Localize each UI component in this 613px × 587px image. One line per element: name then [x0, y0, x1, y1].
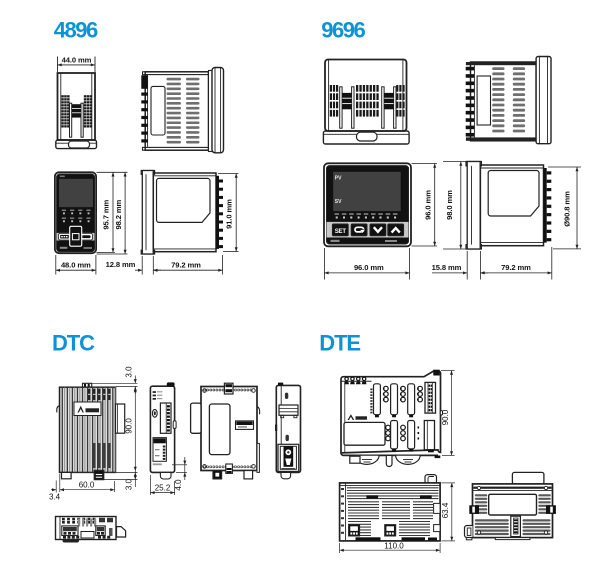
- svg-text:SET: SET: [335, 229, 347, 235]
- svg-text:48.0 mm: 48.0 mm: [61, 260, 91, 269]
- svg-text:90.0: 90.0: [125, 418, 134, 434]
- svg-text:25.2: 25.2: [155, 483, 171, 492]
- svg-text:DTE: DTE: [319, 331, 360, 356]
- svg-text:4896: 4896: [54, 17, 98, 42]
- svg-text:44.0 mm: 44.0 mm: [62, 56, 92, 65]
- svg-text:96.0 mm: 96.0 mm: [354, 263, 384, 272]
- svg-text:96.0 mm: 96.0 mm: [423, 190, 432, 220]
- svg-text:3.0: 3.0: [125, 366, 134, 378]
- svg-text:Ø90.8 mm: Ø90.8 mm: [562, 191, 571, 227]
- svg-text:3.0: 3.0: [125, 478, 134, 490]
- svg-text:3.4: 3.4: [49, 493, 61, 502]
- svg-text:60.0: 60.0: [79, 481, 95, 490]
- svg-text:90.0: 90.0: [441, 409, 450, 425]
- svg-text:91.0 mm: 91.0 mm: [225, 199, 234, 229]
- svg-text:95.7 mm: 95.7 mm: [101, 200, 110, 230]
- svg-text:98.2 mm: 98.2 mm: [114, 200, 123, 230]
- svg-text:79.2 mm: 79.2 mm: [501, 263, 531, 272]
- svg-text:PV: PV: [335, 176, 342, 182]
- svg-text:DTC: DTC: [52, 331, 95, 356]
- svg-text:9696: 9696: [321, 17, 365, 42]
- svg-text:SV: SV: [335, 199, 342, 205]
- svg-text:63.4: 63.4: [441, 502, 450, 518]
- svg-text:4.0: 4.0: [174, 479, 183, 491]
- svg-text:12.8 mm: 12.8 mm: [106, 260, 136, 269]
- svg-text:98.0 mm: 98.0 mm: [445, 190, 454, 220]
- svg-text:110.0: 110.0: [384, 541, 404, 550]
- svg-text:15.8 mm: 15.8 mm: [432, 263, 462, 272]
- svg-text:79.2 mm: 79.2 mm: [171, 260, 201, 269]
